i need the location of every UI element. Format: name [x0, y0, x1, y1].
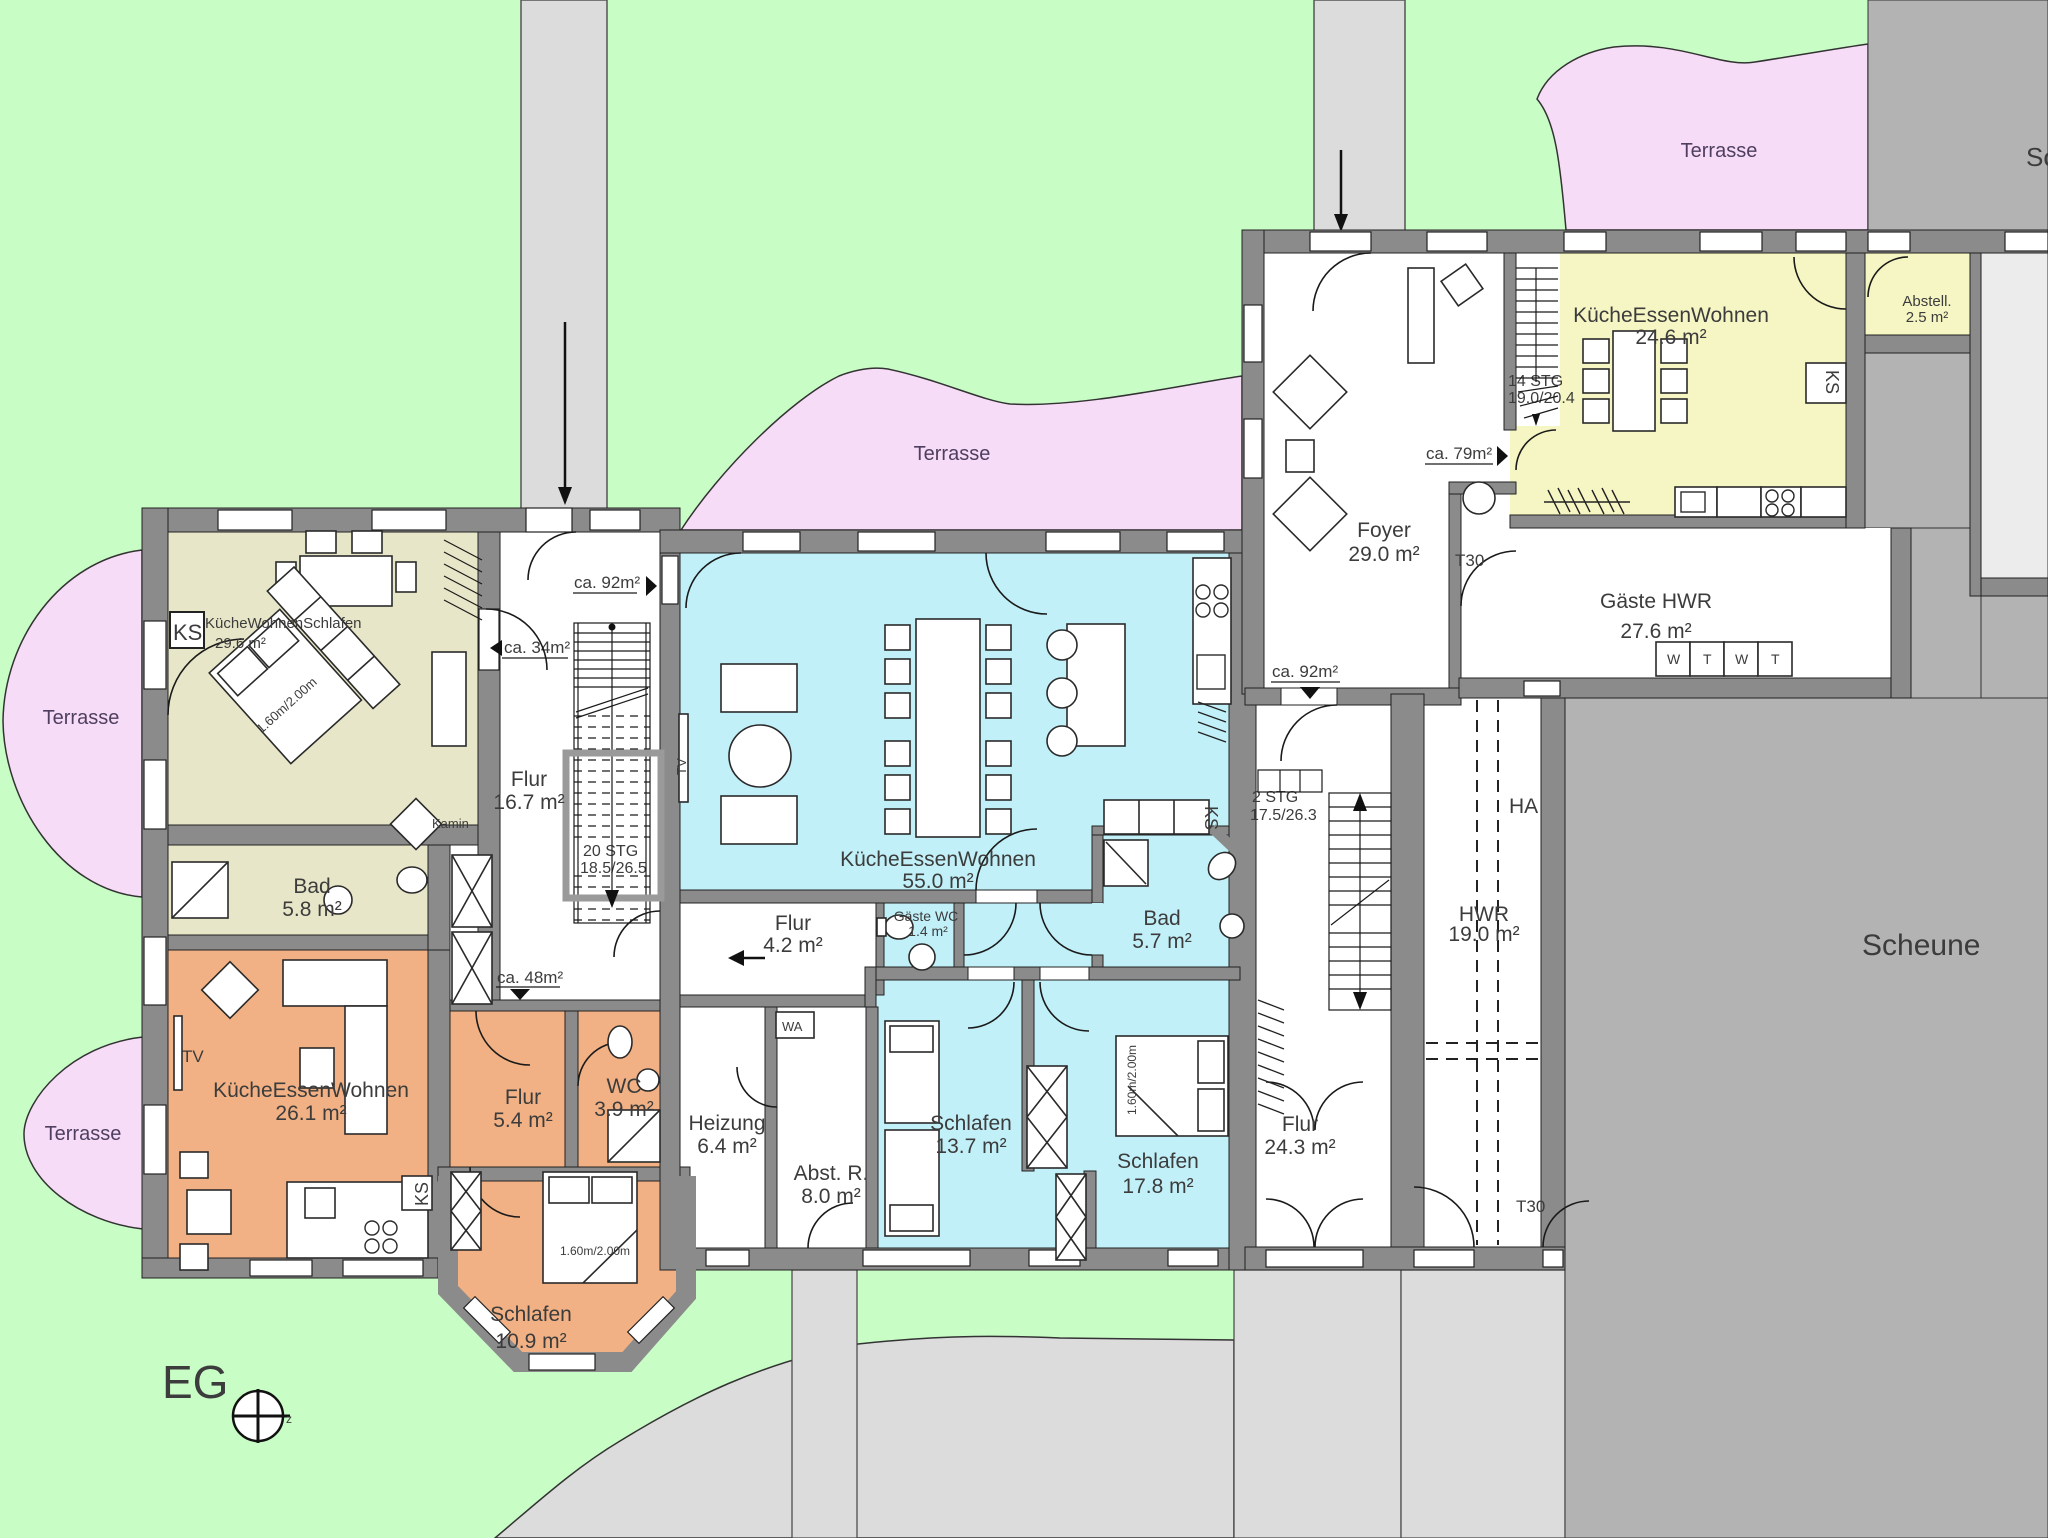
svg-text:Abstell.: Abstell. [1902, 293, 1951, 310]
svg-text:Flur: Flur [775, 912, 811, 935]
svg-text:T: T [1771, 651, 1780, 667]
svg-text:Gäste HWR: Gäste HWR [1600, 590, 1712, 613]
svg-text:Sc: Sc [2026, 142, 2048, 172]
svg-text:Abst. R.: Abst. R. [794, 1162, 869, 1185]
svg-text:27.6 m²: 27.6 m² [1620, 620, 1691, 643]
svg-text:ca. 34m²: ca. 34m² [504, 638, 570, 657]
svg-text:KücheEssenWohnen: KücheEssenWohnen [840, 848, 1036, 871]
svg-text:Scheune: Scheune [1862, 929, 1980, 962]
svg-text:Flur: Flur [1282, 1113, 1318, 1136]
svg-text:Terrasse: Terrasse [43, 707, 120, 729]
svg-text:W: W [1735, 651, 1749, 667]
svg-text:WA: WA [782, 1019, 803, 1034]
svg-text:T30: T30 [1455, 551, 1484, 570]
svg-text:KS: KS [412, 1182, 432, 1206]
svg-text:5.8 m²: 5.8 m² [282, 898, 342, 921]
svg-text:Foyer: Foyer [1357, 519, 1411, 542]
svg-text:Flur: Flur [511, 768, 547, 791]
svg-text:20 STG: 20 STG [583, 843, 638, 860]
svg-text:TV: TV [674, 758, 689, 775]
svg-text:Flur: Flur [505, 1086, 541, 1109]
svg-text:19.0/20.4: 19.0/20.4 [1508, 390, 1575, 407]
svg-text:Schlafen: Schlafen [1117, 1150, 1199, 1173]
svg-text:1.60m/2.00m: 1.60m/2.00m [560, 1244, 630, 1258]
svg-text:z: z [286, 1412, 292, 1426]
svg-text:ca. 92m²: ca. 92m² [574, 573, 640, 592]
svg-text:WC: WC [607, 1075, 642, 1098]
svg-text:KS: KS [1201, 806, 1221, 830]
svg-text:Bad: Bad [1143, 907, 1180, 930]
svg-text:ca. 92m²: ca. 92m² [1272, 662, 1338, 681]
svg-text:24.3 m²: 24.3 m² [1264, 1136, 1335, 1159]
svg-text:HA: HA [1509, 795, 1538, 818]
svg-text:W: W [1667, 651, 1681, 667]
svg-text:Gäste WC: Gäste WC [894, 908, 959, 924]
svg-text:KS: KS [1822, 370, 1842, 394]
svg-text:1.4 m²: 1.4 m² [908, 923, 948, 939]
svg-text:19.0 m²: 19.0 m² [1448, 923, 1519, 946]
svg-text:17.5/26.3: 17.5/26.3 [1250, 807, 1317, 824]
svg-text:KS: KS [173, 620, 202, 645]
svg-text:Schlafen: Schlafen [930, 1112, 1012, 1135]
svg-text:29.0 m²: 29.0 m² [1348, 543, 1419, 566]
svg-text:Terrasse: Terrasse [45, 1123, 122, 1145]
svg-text:TV: TV [182, 1047, 204, 1066]
svg-text:13.7 m²: 13.7 m² [935, 1135, 1006, 1158]
svg-text:18.5/26.5: 18.5/26.5 [580, 860, 647, 877]
svg-text:T: T [1703, 651, 1712, 667]
svg-text:1.60m/2.00m: 1.60m/2.00m [1125, 1045, 1139, 1115]
svg-text:Schlafen: Schlafen [490, 1303, 572, 1326]
svg-text:KücheEssenWohnen: KücheEssenWohnen [1573, 304, 1769, 327]
svg-text:ca. 48m²: ca. 48m² [497, 968, 563, 987]
svg-text:26.1 m²: 26.1 m² [275, 1102, 346, 1125]
svg-text:ca. 79m²: ca. 79m² [1426, 444, 1492, 463]
svg-text:Kamin: Kamin [432, 816, 469, 831]
svg-text:2.5 m²: 2.5 m² [1906, 309, 1949, 326]
svg-text:T30: T30 [1516, 1197, 1545, 1216]
svg-text:29.6 m²: 29.6 m² [215, 635, 266, 652]
svg-text:17.8 m²: 17.8 m² [1122, 1175, 1193, 1198]
svg-text:5.4 m²: 5.4 m² [493, 1109, 553, 1132]
svg-text:4.2 m²: 4.2 m² [763, 934, 823, 957]
svg-text:55.0 m²: 55.0 m² [902, 870, 973, 893]
svg-text:24.6 m²: 24.6 m² [1635, 326, 1706, 349]
svg-text:5.7 m²: 5.7 m² [1132, 930, 1192, 953]
svg-text:3.9 m²: 3.9 m² [594, 1098, 654, 1121]
svg-text:6.4 m²: 6.4 m² [697, 1135, 757, 1158]
svg-text:10.9 m²: 10.9 m² [495, 1330, 566, 1353]
svg-text:16.7 m²: 16.7 m² [493, 791, 564, 814]
svg-text:Heizung: Heizung [688, 1112, 765, 1135]
svg-text:Bad: Bad [293, 875, 330, 898]
svg-text:Terrasse: Terrasse [914, 443, 991, 465]
svg-text:8.0 m²: 8.0 m² [801, 1185, 861, 1208]
svg-text:KücheWohnenSchlafen: KücheWohnenSchlafen [205, 615, 362, 632]
svg-text:EG: EG [162, 1356, 228, 1408]
svg-text:KücheEssenWohnen: KücheEssenWohnen [213, 1079, 409, 1102]
svg-text:Terrasse: Terrasse [1681, 140, 1758, 162]
